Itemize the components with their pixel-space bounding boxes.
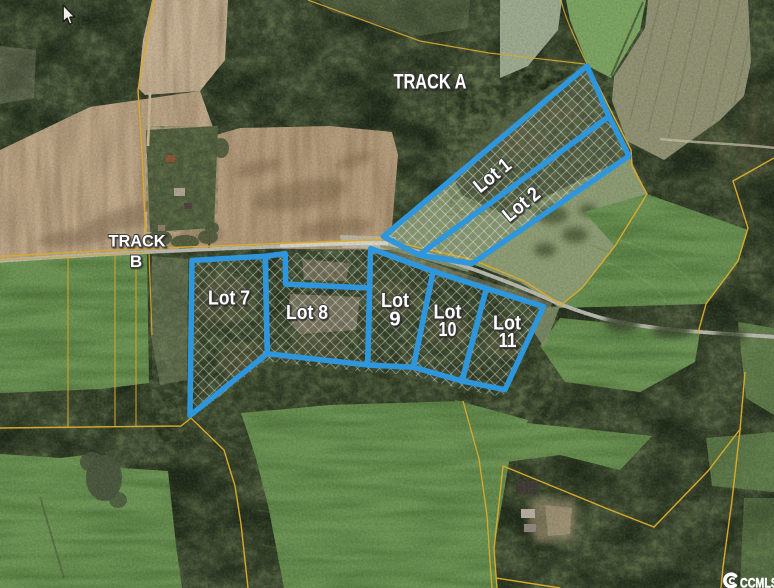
svg-text:9: 9 — [389, 308, 400, 331]
svg-text:10: 10 — [439, 318, 457, 341]
svg-text:B: B — [130, 252, 142, 271]
svg-text:11: 11 — [499, 329, 517, 352]
svg-text:TRACK: TRACK — [109, 233, 166, 251]
svg-text:TRACK A: TRACK A — [394, 70, 467, 94]
svg-text:Lot 8: Lot 8 — [286, 301, 328, 324]
svg-text:CCMLS: CCMLS — [740, 576, 774, 588]
svg-text:Lot 7: Lot 7 — [208, 287, 250, 310]
